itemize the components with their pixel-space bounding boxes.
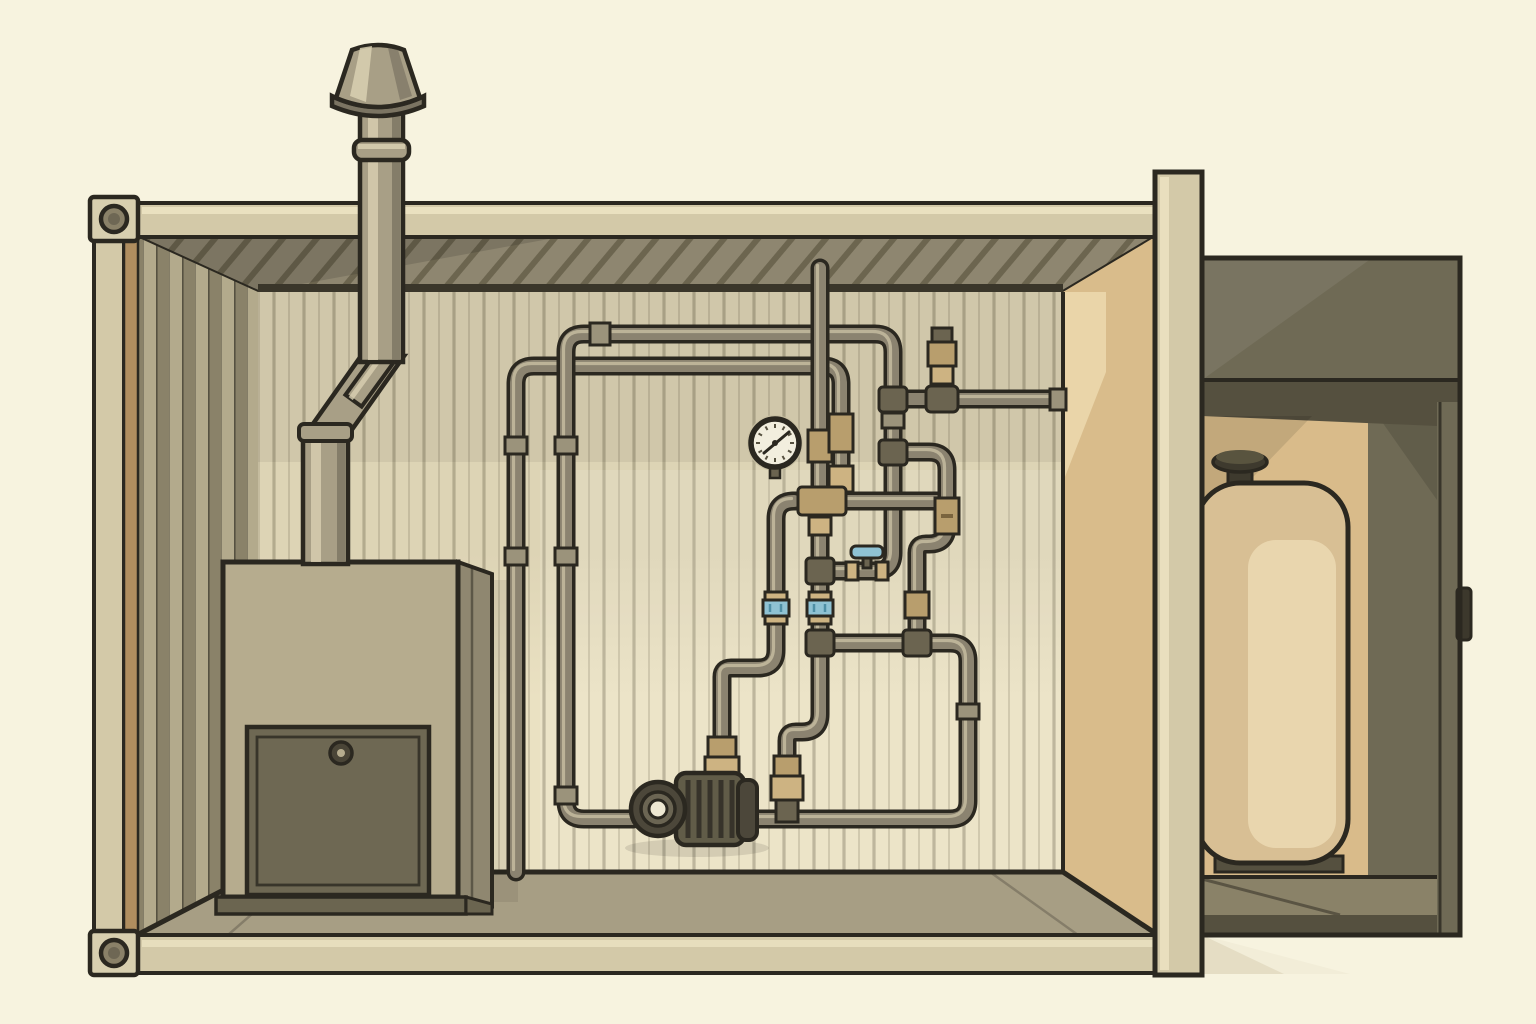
tee-fitting <box>806 558 834 584</box>
storage-tank <box>1196 450 1348 872</box>
blue-valve-inline <box>763 592 789 624</box>
pump-top-brass-upper <box>708 737 736 757</box>
pump-outlet-riser <box>771 756 803 822</box>
wall-feed-flange <box>1050 389 1066 410</box>
valve-nut <box>876 562 888 580</box>
pump-rear-cap <box>738 780 757 840</box>
brass-union <box>935 498 959 534</box>
flue-lower-shade <box>337 432 345 562</box>
brass-coupling <box>809 517 831 535</box>
sleeve-coupling <box>555 548 577 565</box>
tank-filler-cap-top <box>1216 450 1264 464</box>
sleeve-coupling <box>555 437 577 454</box>
sleeve-coupling <box>555 787 577 804</box>
sleeve-coupling <box>505 548 527 565</box>
illustration-stage: Cutaway illustration of a containerized … <box>0 0 1536 1024</box>
boiler-room-cutaway: Cutaway illustration of a containerized … <box>0 0 1536 1024</box>
annex-bottom-band <box>1202 915 1460 935</box>
brass-coupling <box>829 414 853 452</box>
pump-suction-eye <box>649 800 667 818</box>
valve-blue-handle <box>851 546 883 558</box>
gauge-needle-hub <box>772 440 778 446</box>
cross-fitting <box>806 630 834 656</box>
valve-tee-base <box>926 386 958 412</box>
tee-fitting <box>879 387 907 412</box>
flue-storm-collar-highlight <box>358 144 405 149</box>
annex-compartment <box>1196 258 1471 974</box>
tee-fitting <box>903 630 931 656</box>
corner-casting-bottom-left <box>90 931 138 975</box>
left-corner-post-face <box>124 240 138 933</box>
sleeve-coupling <box>957 704 979 719</box>
casting-hole-inner <box>108 213 120 225</box>
valve-blue-band <box>807 600 833 616</box>
corner-casting-top-left <box>90 197 138 241</box>
bottom-rail-highlight <box>142 940 1156 947</box>
left-rail <box>94 238 124 935</box>
tee-fitting <box>879 440 907 465</box>
rain-cap-dome <box>336 45 420 107</box>
sleeve-coupling <box>882 413 904 428</box>
riser-base <box>776 800 798 822</box>
valve-blue-band <box>763 600 789 616</box>
valve-nut <box>931 366 953 384</box>
casting-hole-inner <box>108 947 120 959</box>
flue-lower-highlight <box>311 432 321 562</box>
tank-highlight-panel <box>1248 540 1336 848</box>
brass-coupling <box>905 592 929 618</box>
annex-header-frame <box>1202 380 1460 402</box>
blue-valve-inline <box>807 592 833 624</box>
sleeve-coupling <box>590 323 610 345</box>
boiler-side-panel <box>458 562 492 906</box>
riser-brass-upper <box>774 756 800 776</box>
boiler-plinth <box>216 897 466 914</box>
boiler-door-knob-center <box>337 749 345 757</box>
valve-body <box>928 342 956 366</box>
brass-tee-manifold <box>798 487 846 515</box>
brass-valve-vertical <box>926 328 958 412</box>
flue-storm-collar <box>354 140 409 160</box>
circulator-pump <box>625 773 769 857</box>
top-rail-highlight <box>142 207 1154 214</box>
valve-cap <box>932 328 952 342</box>
flue-lower-collar <box>299 424 352 441</box>
sleeve-coupling <box>505 437 527 454</box>
valve-nut <box>846 562 858 580</box>
boiler <box>216 562 518 914</box>
right-pillar-highlight <box>1160 177 1169 970</box>
riser-brass-lower <box>771 776 803 800</box>
